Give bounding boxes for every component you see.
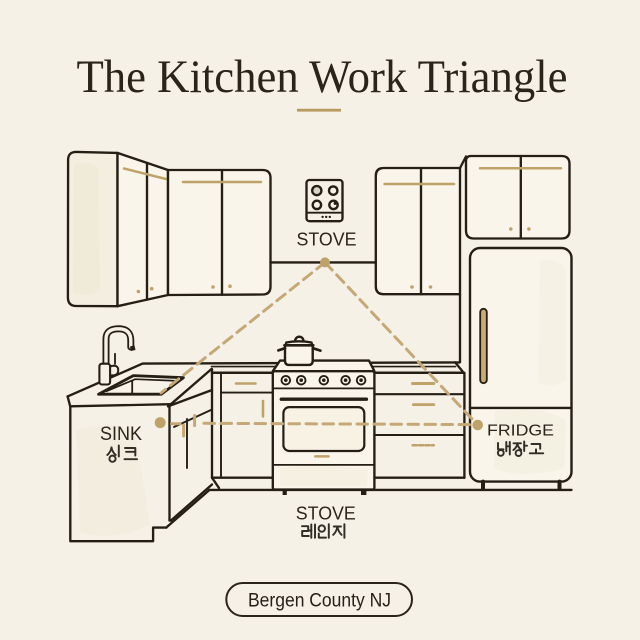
svg-text:Bergen County NJ: Bergen County NJ	[248, 589, 391, 611]
svg-text:SINK: SINK	[100, 424, 142, 445]
svg-text:FRIDGE: FRIDGE	[487, 422, 554, 439]
svg-text:STOVE: STOVE	[296, 503, 356, 524]
svg-text:The Kitchen Work Triangle: The Kitchen Work Triangle	[77, 51, 568, 103]
svg-text:STOVE: STOVE	[297, 228, 357, 249]
